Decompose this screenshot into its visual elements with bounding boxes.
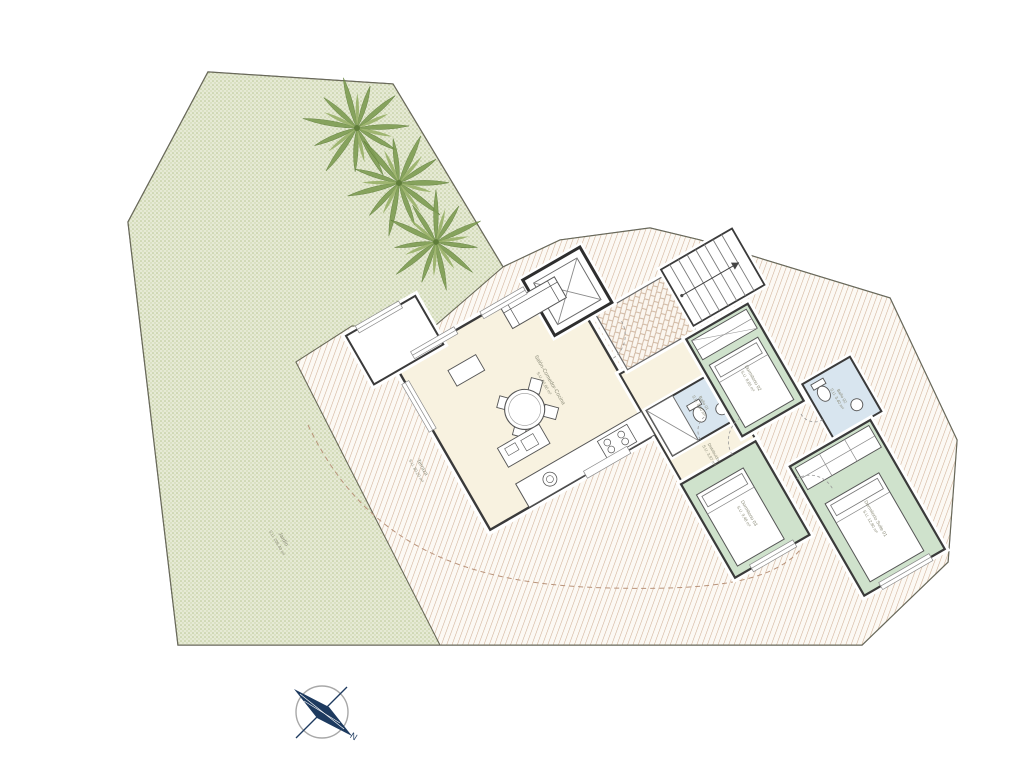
north-label: N <box>348 730 359 742</box>
floor-plan-page: Salón-Comedor-Cocina S.U. 30,80 m² Distr… <box>0 0 1024 768</box>
floor-plan-drawing: Salón-Comedor-Cocina S.U. 30,80 m² Distr… <box>0 0 1024 768</box>
compass-rose: N <box>294 686 359 742</box>
